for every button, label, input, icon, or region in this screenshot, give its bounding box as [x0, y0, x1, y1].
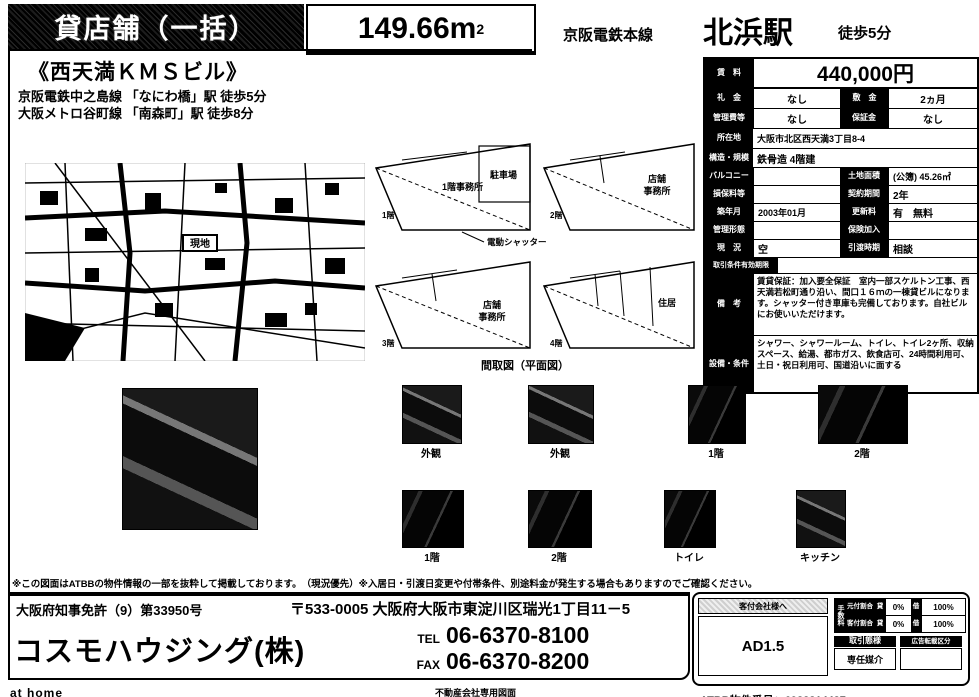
fee-row1-name: 元付割合: [845, 599, 875, 615]
management-value: [753, 222, 840, 239]
fees-row: 管理費等 なし 保証金 なし: [705, 109, 977, 129]
deal-type-block: 取引態様 専任媒介: [834, 636, 896, 670]
ad-fee-box: AD1.5: [698, 616, 828, 676]
equipment-label: 設備・条件: [705, 336, 753, 392]
fee-row1-tenant-value: 100%: [921, 599, 965, 615]
fee-row1-lessor-label: 貸: [875, 599, 885, 615]
built-date-value: 2003年01月: [753, 204, 840, 221]
ad-repost-value: [900, 648, 962, 670]
kanrihi-value: なし: [753, 109, 840, 128]
plan4-floor-label: 4階: [550, 338, 562, 348]
equipment-cell: シャワー、シャワールーム、トイレ、トイレ2ヶ所、収納スペース、給湯、都市ガス、飲…: [753, 336, 977, 392]
equipment-row: 設備・条件 シャワー、シャワールーム、トイレ、トイレ2ヶ所、収納スペース、給湯、…: [705, 336, 977, 392]
broker-info-box: 客付会社様へ AD1.5 手数料 元付割合 貸 0% 借 100% 客付割合 貸: [692, 592, 970, 686]
property-type-banner: 貸店舗（一括）: [8, 4, 304, 49]
plan3-floor-label: 3階: [382, 338, 394, 348]
athome-logo: at home: [10, 686, 63, 697]
photo-1f-interior: [402, 490, 464, 548]
photo-caption-1f: 1階: [681, 445, 751, 460]
structure-label: 構造・規模: [705, 149, 753, 167]
company-address: 〒533-0005 大阪府大阪市東淀川区瑞光1丁目11－5: [290, 598, 630, 619]
balcony-label: バルコニー: [705, 168, 753, 185]
structure-value: 鉄骨造 4階建: [753, 149, 977, 167]
photo-kitchen: [796, 490, 846, 548]
plan2-room-label2: 事務所: [643, 185, 670, 196]
reikin-value: なし: [753, 89, 840, 108]
building-name: 《西天満ＫＭＳビル》: [28, 56, 248, 86]
photo-caption-exterior-1: 外観: [396, 445, 466, 460]
walk-time-label: 徒歩5分: [838, 22, 891, 43]
floorplan-diagrams: 1階事務所 駐車場 1階 店舗 事務所 2階 電動シャッター 店舗 事務所 3階…: [372, 138, 698, 356]
flyer-page: 貸店舗（一括） 149.66m2 京阪電鉄本線 北浜駅 徒歩5分 《西天満ＫＭＳ…: [0, 0, 979, 697]
shutter-label: 電動シャッター: [487, 237, 547, 247]
floor-area-sup: 2: [476, 21, 484, 37]
tel-row: TEL06-6370-8100: [410, 622, 589, 649]
management-label: 管理形態: [705, 222, 753, 239]
photo-exterior-1: [402, 385, 462, 444]
access-line-2: 大阪メトロ谷町線 「南森町」駅 徒歩8分: [18, 103, 253, 122]
hoshokin-label: 保証金: [840, 109, 888, 128]
atbb-number: ATBB物件番号：6982814427: [700, 692, 846, 697]
insurance2-value: [888, 222, 977, 239]
remarks-text: 賃貸保証：加入要全保証 室内一部スケルトン工事、西天満若松町通り沿い、間口１６ｍ…: [754, 274, 977, 322]
tel-number: 06-6370-8100: [446, 622, 589, 648]
plan2-room-label: 店舗: [648, 173, 666, 184]
disclaimer-text: ※この図面はATBBの物件情報の一部を抜粋して掲載しております。 （現況優先）※…: [12, 576, 757, 590]
hoshokin-value: なし: [888, 109, 977, 128]
fee-row2-tenant-value: 100%: [921, 616, 965, 632]
renewal-fee-label: 更新料: [840, 204, 888, 221]
equipment-text: シャワー、シャワールーム、トイレ、トイレ2ヶ所、収納スペース、給湯、都市ガス、飲…: [754, 336, 977, 373]
rail-line-label: 京阪電鉄本線: [563, 24, 653, 45]
validity-label: 取引条件有効期限: [705, 258, 777, 273]
land-area-value: (公簿) 45.26㎡: [888, 168, 977, 185]
fax-number: 06-6370-8200: [446, 648, 589, 674]
photo-caption-toilet: トイレ: [654, 549, 724, 564]
contract-row: 損保料等 契約期間 2年: [705, 186, 977, 204]
left-border-rule: [8, 49, 10, 592]
remarks-label: 備 考: [705, 274, 753, 335]
floorplan-section-label: 間取図（平面図）: [400, 357, 650, 373]
license-number: 大阪府知事免許（9）第33950号: [16, 600, 202, 619]
address-value: 大阪市北区西天満3丁目8-4: [753, 129, 977, 148]
photo-2f: [818, 385, 908, 444]
balcony-value: [753, 168, 840, 185]
fee-table-side-label: 手数料: [835, 599, 845, 632]
renewal-fee-value: 有 無料: [888, 204, 977, 221]
station-name: 北浜駅: [703, 8, 793, 52]
built-date-label: 築年月: [705, 204, 753, 221]
floor-area-value: 149.66m: [358, 12, 476, 46]
management-row: 管理形態 保険加入: [705, 222, 977, 240]
handover-label: 引渡時期: [840, 240, 888, 257]
reikin-label: 礼 金: [705, 89, 753, 108]
property-type-label: 貸店舗（一括）: [55, 7, 258, 46]
rent-value: 440,000円: [753, 59, 977, 87]
fee-row-kyakuzuke: 客付割合 貸 0% 借 100%: [845, 616, 965, 632]
plan2-floor-label: 2階: [550, 210, 562, 220]
ad-repost-block: 広告転載区分: [900, 636, 962, 670]
kanrihi-label: 管理費等: [705, 109, 753, 128]
plan1-room-label: 1階事務所: [442, 181, 483, 192]
photo-caption-exterior-2: 外観: [525, 445, 595, 460]
status-value: 空: [753, 240, 840, 257]
area-map-image: 現地: [25, 163, 365, 361]
ad-repost-label: 広告転載区分: [900, 636, 962, 647]
status-row: 現 況 空 引渡時期 相談: [705, 240, 977, 258]
contract-term-label: 契約期間: [840, 186, 888, 203]
broker-box-header: 客付会社様へ: [698, 598, 828, 614]
shikikin-label: 敷 金: [840, 89, 888, 108]
photo-caption-kitchen: キッチン: [785, 549, 855, 564]
fee-row1-lessor-value: 0%: [885, 599, 911, 615]
photo-1f: [688, 385, 746, 444]
map-site-label: 現地: [190, 237, 210, 250]
fee-row2-lessor-label: 貸: [875, 616, 885, 632]
structure-row: 構造・規模 鉄骨造 4階建: [705, 149, 977, 168]
rent-label: 賃 料: [705, 59, 753, 87]
validity-row: 取引条件有効期限: [705, 258, 977, 274]
fee-row-motozuke: 元付割合 貸 0% 借 100%: [845, 599, 965, 616]
remarks-cell: 賃貸保証：加入要全保証 室内一部スケルトン工事、西天満若松町通り沿い、間口１６ｍ…: [753, 274, 977, 335]
fax-label: FAX: [410, 658, 440, 672]
photo-caption-2f-interior: 2階: [524, 549, 594, 564]
plan3-room-label2: 事務所: [478, 311, 505, 322]
deal-type-value: 専任媒介: [834, 648, 896, 670]
photo-building-exterior-large: [122, 388, 258, 530]
built-row: 築年月 2003年01月 更新料 有 無料: [705, 204, 977, 222]
map-site-marker: 現地: [183, 235, 217, 251]
tel-label: TEL: [410, 632, 440, 646]
key-deposit-row: 礼 金 なし 敷 金 2ヵ月: [705, 89, 977, 109]
insurance-value: [753, 186, 840, 203]
deal-type-label: 取引態様: [834, 636, 896, 647]
insurance2-label: 保険加入: [840, 222, 888, 239]
fee-row2-name: 客付割合: [845, 616, 875, 632]
fee-row2-tenant-label: 借: [911, 616, 921, 632]
remarks-row: 備 考 賃貸保証：加入要全保証 室内一部スケルトン工事、西天満若松町通り沿い、間…: [705, 274, 977, 336]
rent-row: 賃 料 440,000円: [705, 59, 977, 89]
fee-table: 手数料 元付割合 貸 0% 借 100% 客付割合 貸 0% 借 100%: [834, 598, 966, 670]
address-row: 所在地 大阪市北区西天満3丁目8-4: [705, 129, 977, 149]
photo-2f-interior: [528, 490, 592, 548]
status-label: 現 況: [705, 240, 753, 257]
handover-value: 相談: [888, 240, 977, 257]
fax-row: FAX06-6370-8200: [410, 648, 589, 675]
header-underline: [8, 49, 532, 51]
photo-caption-2f: 2階: [827, 445, 897, 460]
photo-exterior-2: [528, 385, 594, 444]
property-info-table: 賃 料 440,000円 礼 金 なし 敷 金 2ヵ月 管理費等 なし 保証金 …: [703, 57, 979, 394]
fee-row1-tenant-label: 借: [911, 599, 921, 615]
address-label: 所在地: [705, 129, 753, 148]
plan3-room-label: 店舗: [483, 299, 501, 310]
plan4-room-label: 住居: [658, 297, 676, 308]
land-area-row: バルコニー 土地面積 (公簿) 45.26㎡: [705, 168, 977, 186]
company-name: コスモハウジング(株): [14, 628, 305, 670]
plan1-sub-label: 駐車場: [490, 169, 517, 180]
floor-area-box: 149.66m2: [306, 4, 536, 55]
insurance-label: 損保料等: [705, 186, 753, 203]
validity-value: [777, 258, 977, 273]
photo-caption-1f-interior: 1階: [397, 549, 467, 564]
shikikin-value: 2ヵ月: [888, 89, 977, 108]
contract-term-value: 2年: [888, 186, 977, 203]
photo-toilet: [664, 490, 716, 548]
plan1-floor-label: 1階: [382, 210, 394, 220]
drawing-note: 不動産会社専用図面: [435, 686, 516, 697]
land-area-label: 土地面積: [840, 168, 888, 185]
fee-row2-lessor-value: 0%: [885, 616, 911, 632]
